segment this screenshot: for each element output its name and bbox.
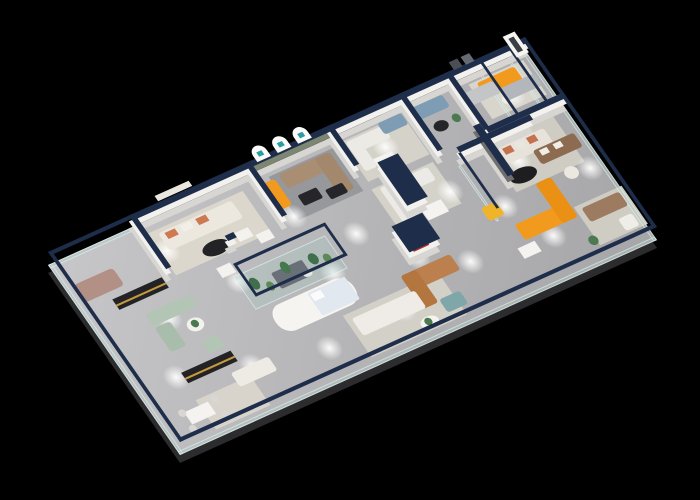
wall-bay3-cap <box>398 92 443 151</box>
wall-bay1-left-cap <box>129 213 171 269</box>
back-wall-1-cap <box>129 162 252 221</box>
wall-bay1-right-cap <box>245 161 287 217</box>
wall-red-niche-cap <box>377 153 427 205</box>
glass-right-cap <box>522 37 657 229</box>
wall-arch-right-cap <box>327 124 360 166</box>
glass-left-cap <box>48 250 183 442</box>
wall-suite-front-cap <box>485 92 567 133</box>
glass-bay-partition-1-cap <box>480 61 520 116</box>
wall-bay4-cap <box>445 71 490 130</box>
glass-rail-mid-cap <box>458 152 499 208</box>
showroom-isometric-render <box>0 0 700 500</box>
glass-bay-partition-2-cap <box>509 48 549 103</box>
glass-terrarium-frame <box>233 222 348 296</box>
wall-brand-logo-cap <box>392 213 441 253</box>
glass-back-left-cap <box>48 216 131 256</box>
wall-stub-cap <box>225 232 237 241</box>
